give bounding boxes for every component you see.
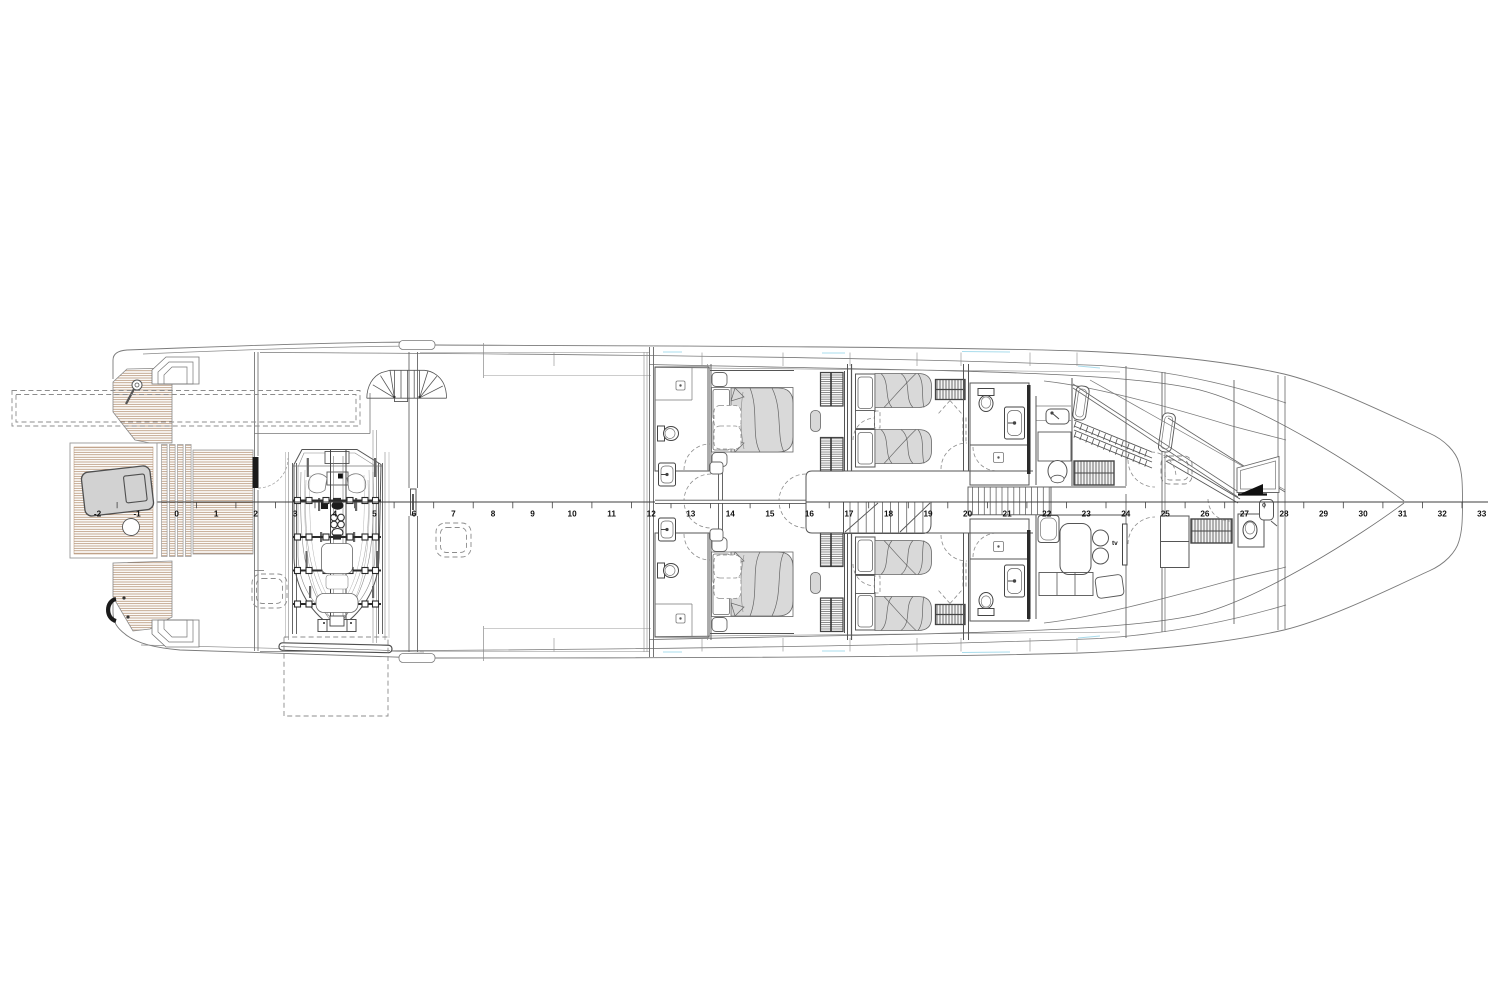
svg-text:24: 24 xyxy=(1121,510,1131,519)
svg-text:tv: tv xyxy=(1112,540,1118,547)
svg-text:2: 2 xyxy=(253,510,258,519)
svg-text:25: 25 xyxy=(1161,510,1171,519)
svg-text:22: 22 xyxy=(1042,510,1052,519)
svg-text:20: 20 xyxy=(963,510,973,519)
svg-text:11: 11 xyxy=(607,510,616,519)
svg-text:7: 7 xyxy=(451,510,456,519)
svg-text:12: 12 xyxy=(647,510,657,519)
svg-text:9: 9 xyxy=(530,510,535,519)
svg-text:4: 4 xyxy=(333,510,338,519)
svg-text:23: 23 xyxy=(1082,510,1092,519)
svg-text:15: 15 xyxy=(765,510,775,519)
svg-text:32: 32 xyxy=(1438,510,1448,519)
svg-text:19: 19 xyxy=(923,510,933,519)
svg-text:8: 8 xyxy=(491,510,496,519)
svg-text:16: 16 xyxy=(805,510,815,519)
svg-text:3: 3 xyxy=(293,510,298,519)
svg-text:31: 31 xyxy=(1398,510,1408,519)
svg-text:18: 18 xyxy=(884,510,894,519)
svg-text:5: 5 xyxy=(372,510,377,519)
svg-text:0: 0 xyxy=(174,510,179,519)
svg-text:10: 10 xyxy=(568,510,578,519)
svg-text:27: 27 xyxy=(1240,510,1250,519)
svg-text:17: 17 xyxy=(844,510,854,519)
svg-text:13: 13 xyxy=(686,510,696,519)
svg-text:1: 1 xyxy=(214,510,219,519)
svg-text:14: 14 xyxy=(726,510,736,519)
svg-text:6: 6 xyxy=(412,510,417,519)
svg-text:30: 30 xyxy=(1359,510,1369,519)
svg-text:-1: -1 xyxy=(133,510,141,519)
svg-text:33: 33 xyxy=(1477,510,1487,519)
svg-text:26: 26 xyxy=(1200,510,1210,519)
svg-text:-2: -2 xyxy=(94,510,102,519)
svg-text:29: 29 xyxy=(1319,510,1329,519)
svg-text:28: 28 xyxy=(1279,510,1289,519)
svg-text:21: 21 xyxy=(1003,510,1013,519)
